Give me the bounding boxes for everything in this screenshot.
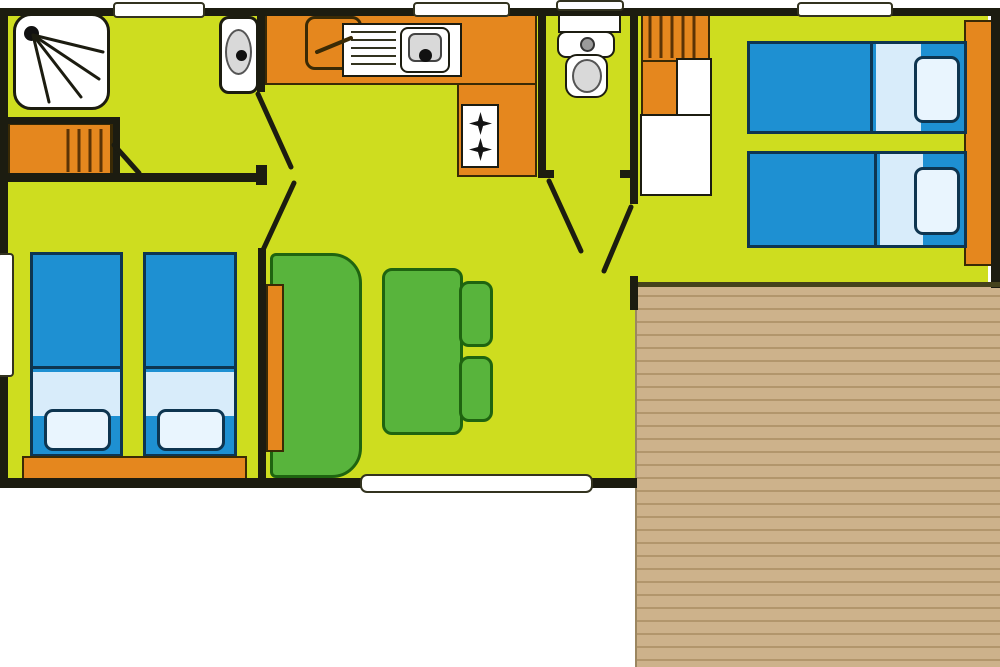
- toilet-bowl-inner: [572, 59, 602, 93]
- terrace-deck: [635, 284, 1000, 667]
- wall-left: [0, 8, 8, 488]
- bed-pillow: [44, 409, 111, 451]
- bathroom-wardrobe: [7, 122, 113, 177]
- bed-blanket: [750, 44, 873, 131]
- floorplan-canvas: { "title": "Mobile home floor plan", "pa…: [0, 0, 1000, 667]
- window-top-bathroom: [113, 2, 205, 18]
- closet-shelf-upper: [676, 58, 712, 118]
- bed-blanket: [750, 154, 877, 245]
- bed-right-1: [747, 41, 967, 134]
- wall-wc-left-jog: [538, 170, 554, 178]
- bed-left-1: [30, 252, 123, 457]
- sink-faucet-dot: [419, 49, 432, 62]
- window-top-wc: [556, 0, 624, 11]
- stool-1: [459, 281, 493, 347]
- wall-bedroom-left-top: [0, 173, 267, 182]
- toilet-flush-button: [580, 37, 595, 52]
- window-bottom-living-bay: [360, 474, 593, 493]
- bed-pillow: [914, 56, 960, 123]
- wall-terrace-cap: [630, 276, 638, 310]
- bedroom-right-cabinet: [641, 60, 678, 117]
- wall-bathroom-right: [113, 117, 120, 179]
- bed-blanket: [146, 255, 234, 369]
- wall-bedroom-right-bottom: [634, 282, 1000, 287]
- window-left-bedroom: [0, 253, 14, 377]
- wall-bathroom-bottom: [0, 117, 120, 124]
- washbasin-faucet-dot: [236, 50, 247, 61]
- bed-right-2: [747, 151, 967, 248]
- sofa-side-shelf: [266, 284, 284, 452]
- stool-2: [459, 356, 493, 422]
- bed-left-2: [143, 252, 237, 457]
- bed-pillow: [157, 409, 225, 451]
- window-top-bedroom-right: [797, 2, 893, 17]
- wall-hall-kitchen: [257, 8, 265, 92]
- bed-pillow: [914, 167, 960, 235]
- window-top-kitchen: [413, 2, 510, 17]
- wall-bedroom-right-left: [630, 8, 638, 204]
- shower-head-icon: [24, 26, 39, 41]
- wall-bedroom-left-top-cap: [256, 165, 267, 185]
- wall-bedroom-door-hinge-tick: [620, 170, 630, 178]
- bed-blanket: [33, 255, 120, 369]
- wall-bedroom-left-right: [258, 248, 266, 480]
- wall-right: [991, 8, 1000, 288]
- bedroom-right-wardrobe: [641, 12, 710, 62]
- closet-shelf-lower: [640, 114, 712, 196]
- headboard-shelf: [964, 20, 994, 266]
- wall-wc-left: [538, 8, 546, 178]
- dining-table: [382, 268, 463, 435]
